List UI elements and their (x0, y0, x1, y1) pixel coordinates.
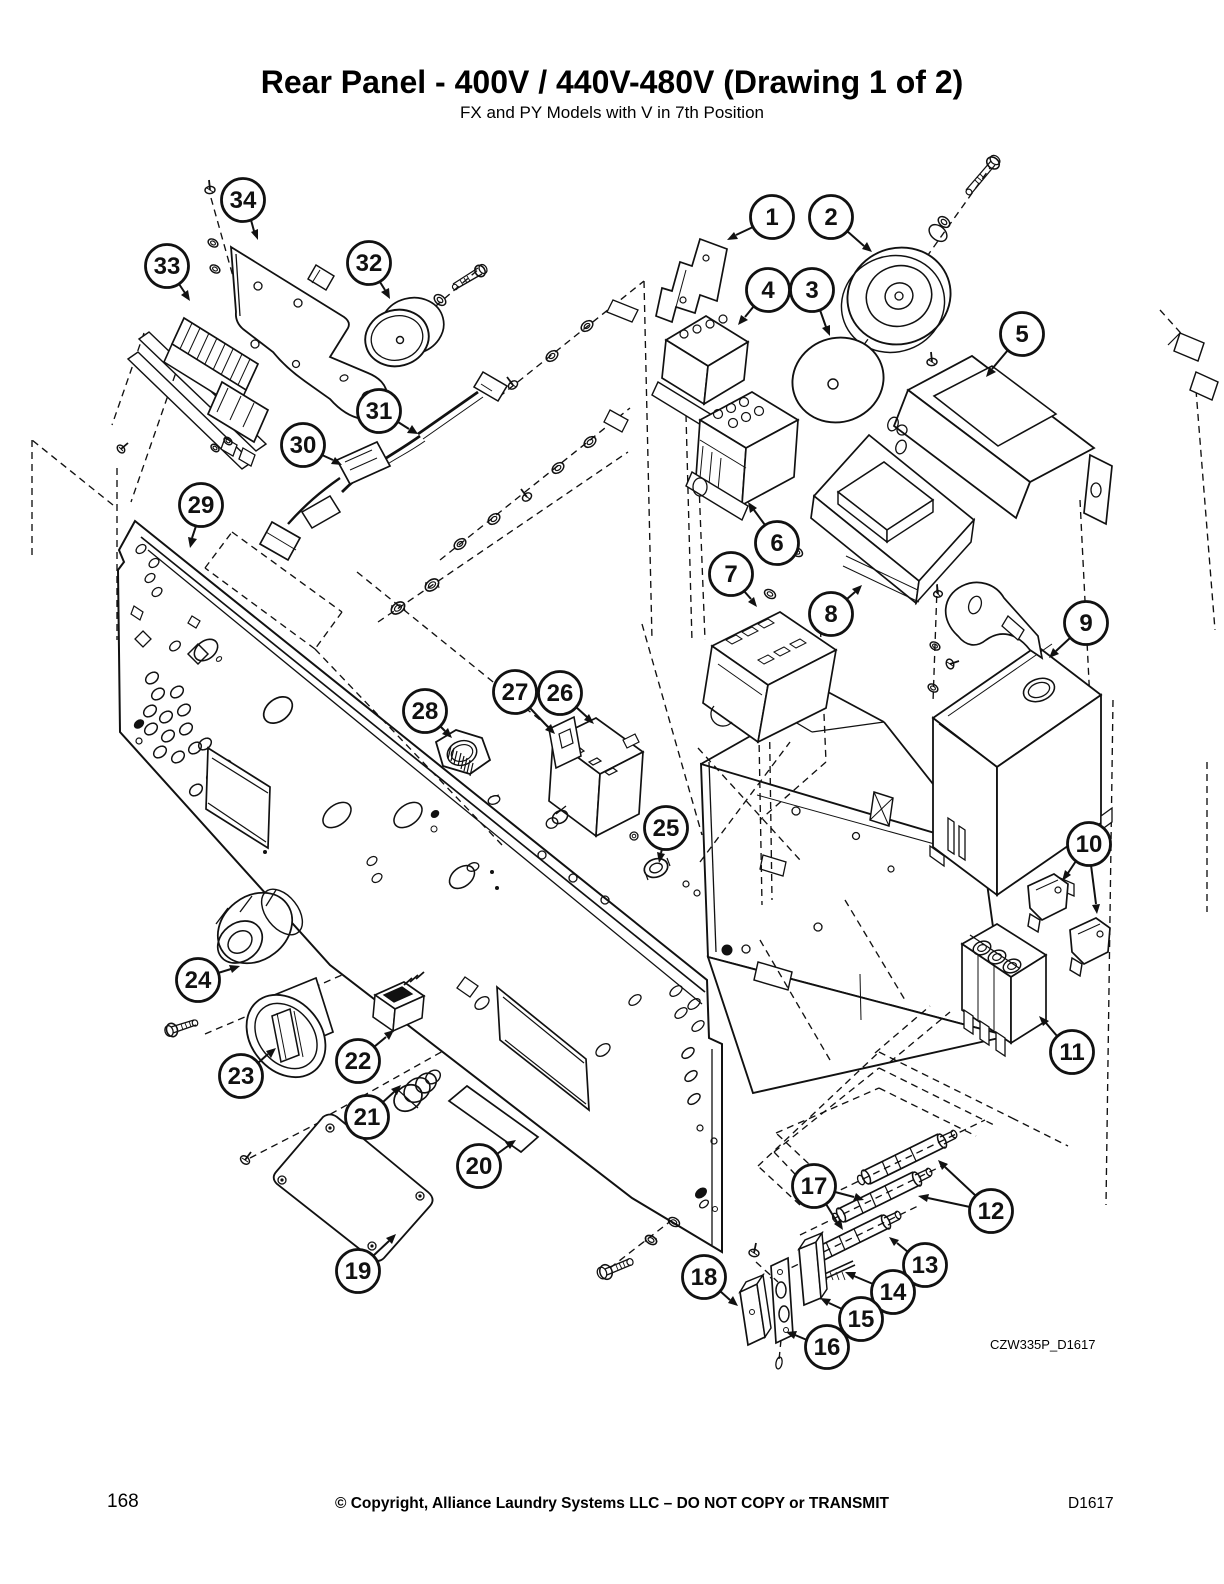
svg-text:10: 10 (1076, 831, 1103, 858)
svg-text:27: 27 (502, 679, 529, 706)
svg-text:7: 7 (724, 561, 737, 588)
svg-text:16: 16 (814, 1334, 841, 1361)
svg-text:12: 12 (978, 1198, 1005, 1225)
svg-text:14: 14 (880, 1279, 907, 1306)
svg-text:31: 31 (366, 398, 393, 425)
svg-text:17: 17 (801, 1173, 828, 1200)
svg-text:8: 8 (824, 601, 837, 628)
svg-text:6: 6 (770, 530, 783, 557)
svg-text:13: 13 (912, 1252, 939, 1279)
svg-text:32: 32 (356, 250, 383, 277)
svg-text:2: 2 (824, 204, 837, 231)
svg-text:3: 3 (805, 277, 818, 304)
svg-text:22: 22 (345, 1048, 372, 1075)
svg-text:23: 23 (228, 1063, 255, 1090)
svg-text:20: 20 (466, 1153, 493, 1180)
svg-text:5: 5 (1015, 321, 1028, 348)
svg-text:18: 18 (691, 1264, 718, 1291)
svg-text:9: 9 (1079, 610, 1092, 637)
svg-text:21: 21 (354, 1104, 381, 1131)
svg-text:4: 4 (761, 277, 775, 304)
svg-text:26: 26 (547, 680, 574, 707)
svg-text:28: 28 (412, 698, 439, 725)
svg-text:30: 30 (290, 432, 317, 459)
svg-text:11: 11 (1059, 1039, 1084, 1066)
svg-text:19: 19 (345, 1258, 372, 1285)
svg-text:29: 29 (188, 492, 215, 519)
svg-text:34: 34 (230, 187, 257, 214)
svg-text:1: 1 (765, 204, 778, 231)
svg-text:15: 15 (848, 1306, 875, 1333)
svg-text:33: 33 (154, 253, 181, 280)
svg-text:24: 24 (185, 967, 212, 994)
svg-text:25: 25 (653, 815, 680, 842)
